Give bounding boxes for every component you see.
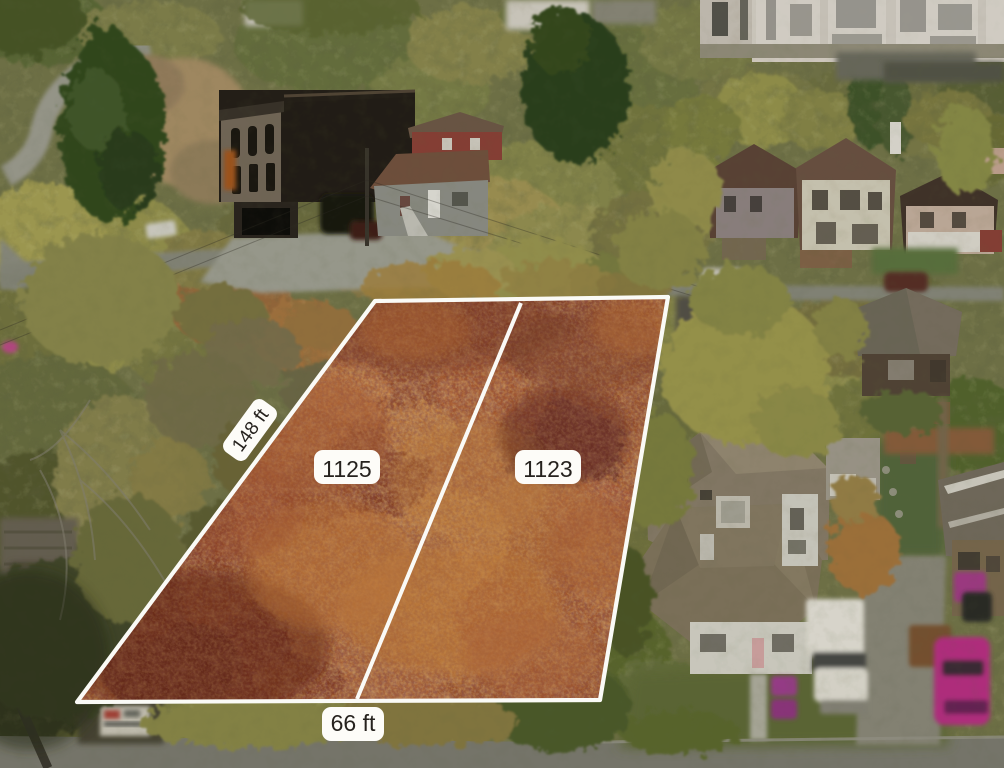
svg-text:1123: 1123 <box>523 456 572 482</box>
svg-text:1125: 1125 <box>322 456 371 482</box>
svg-text:66 ft: 66 ft <box>331 710 376 736</box>
